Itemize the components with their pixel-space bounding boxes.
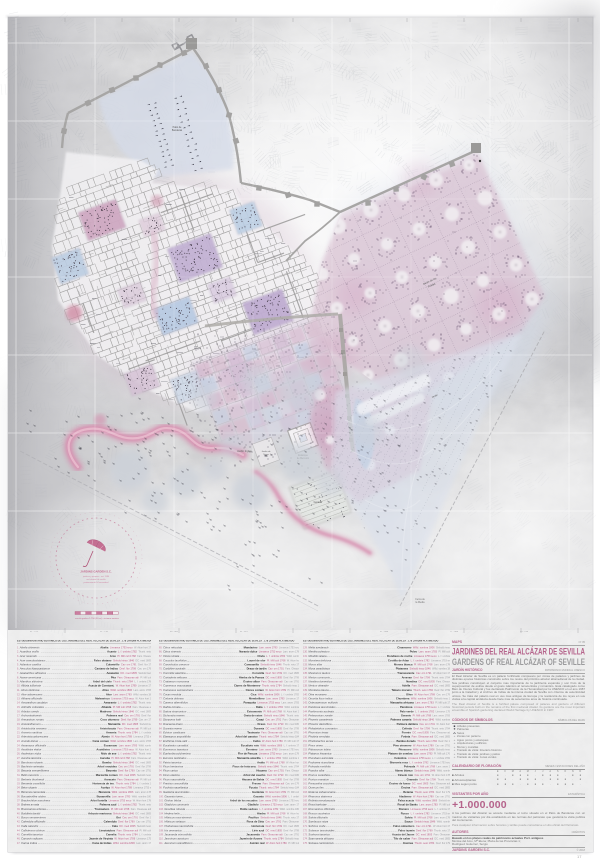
svg-text:Jardin Ingles: Jardin Ingles — [237, 449, 252, 453]
svg-text:Banderas: Banderas — [172, 129, 183, 132]
svg-text:jardines y parques . est. 1986: jardines y parques . est. 1986 — [82, 575, 110, 578]
svg-text:91 . 627: 91 . 627 — [240, 631, 249, 633]
svg-text:JARDINS GARDEN S.C.: JARDINS GARDEN S.C. — [80, 570, 112, 574]
svg-text:GARDENS OF REAL ALCÁZAR OF SEV: GARDENS OF REAL ALCÁZAR OF SEVILLE — [452, 657, 585, 666]
svg-text:77 . 908: 77 . 908 — [450, 631, 459, 633]
svg-text:real alcazar de sevilla: real alcazar de sevilla — [86, 579, 106, 581]
svg-text:57 . 548: 57 . 548 — [380, 631, 389, 633]
svg-text:la Media: la Media — [415, 601, 425, 604]
svg-text:14 . 746: 14 . 746 — [310, 631, 319, 633]
svg-text:23 . 799: 23 . 799 — [520, 631, 529, 633]
svg-text:JARDINES DEL REAL ALCÁZAR DE S: JARDINES DEL REAL ALCÁZAR DE SEVILLA — [452, 647, 585, 657]
svg-text:Jardin de: Jardin de — [262, 450, 272, 453]
svg-text:17: 17 — [577, 854, 582, 859]
svg-text:Cenador: Cenador — [314, 501, 323, 504]
svg-text:95 . 962: 95 . 962 — [170, 631, 179, 633]
svg-text:escala grafica 1:750 (50 m) -: escala grafica 1:750 (50 m) - sistema me… — [75, 617, 120, 620]
svg-text:patrimonio de la humanidad: patrimonio de la humanidad — [84, 581, 109, 584]
svg-text:21 . 732: 21 . 732 — [100, 631, 109, 633]
svg-text:97 . 722: 97 . 722 — [30, 631, 39, 633]
